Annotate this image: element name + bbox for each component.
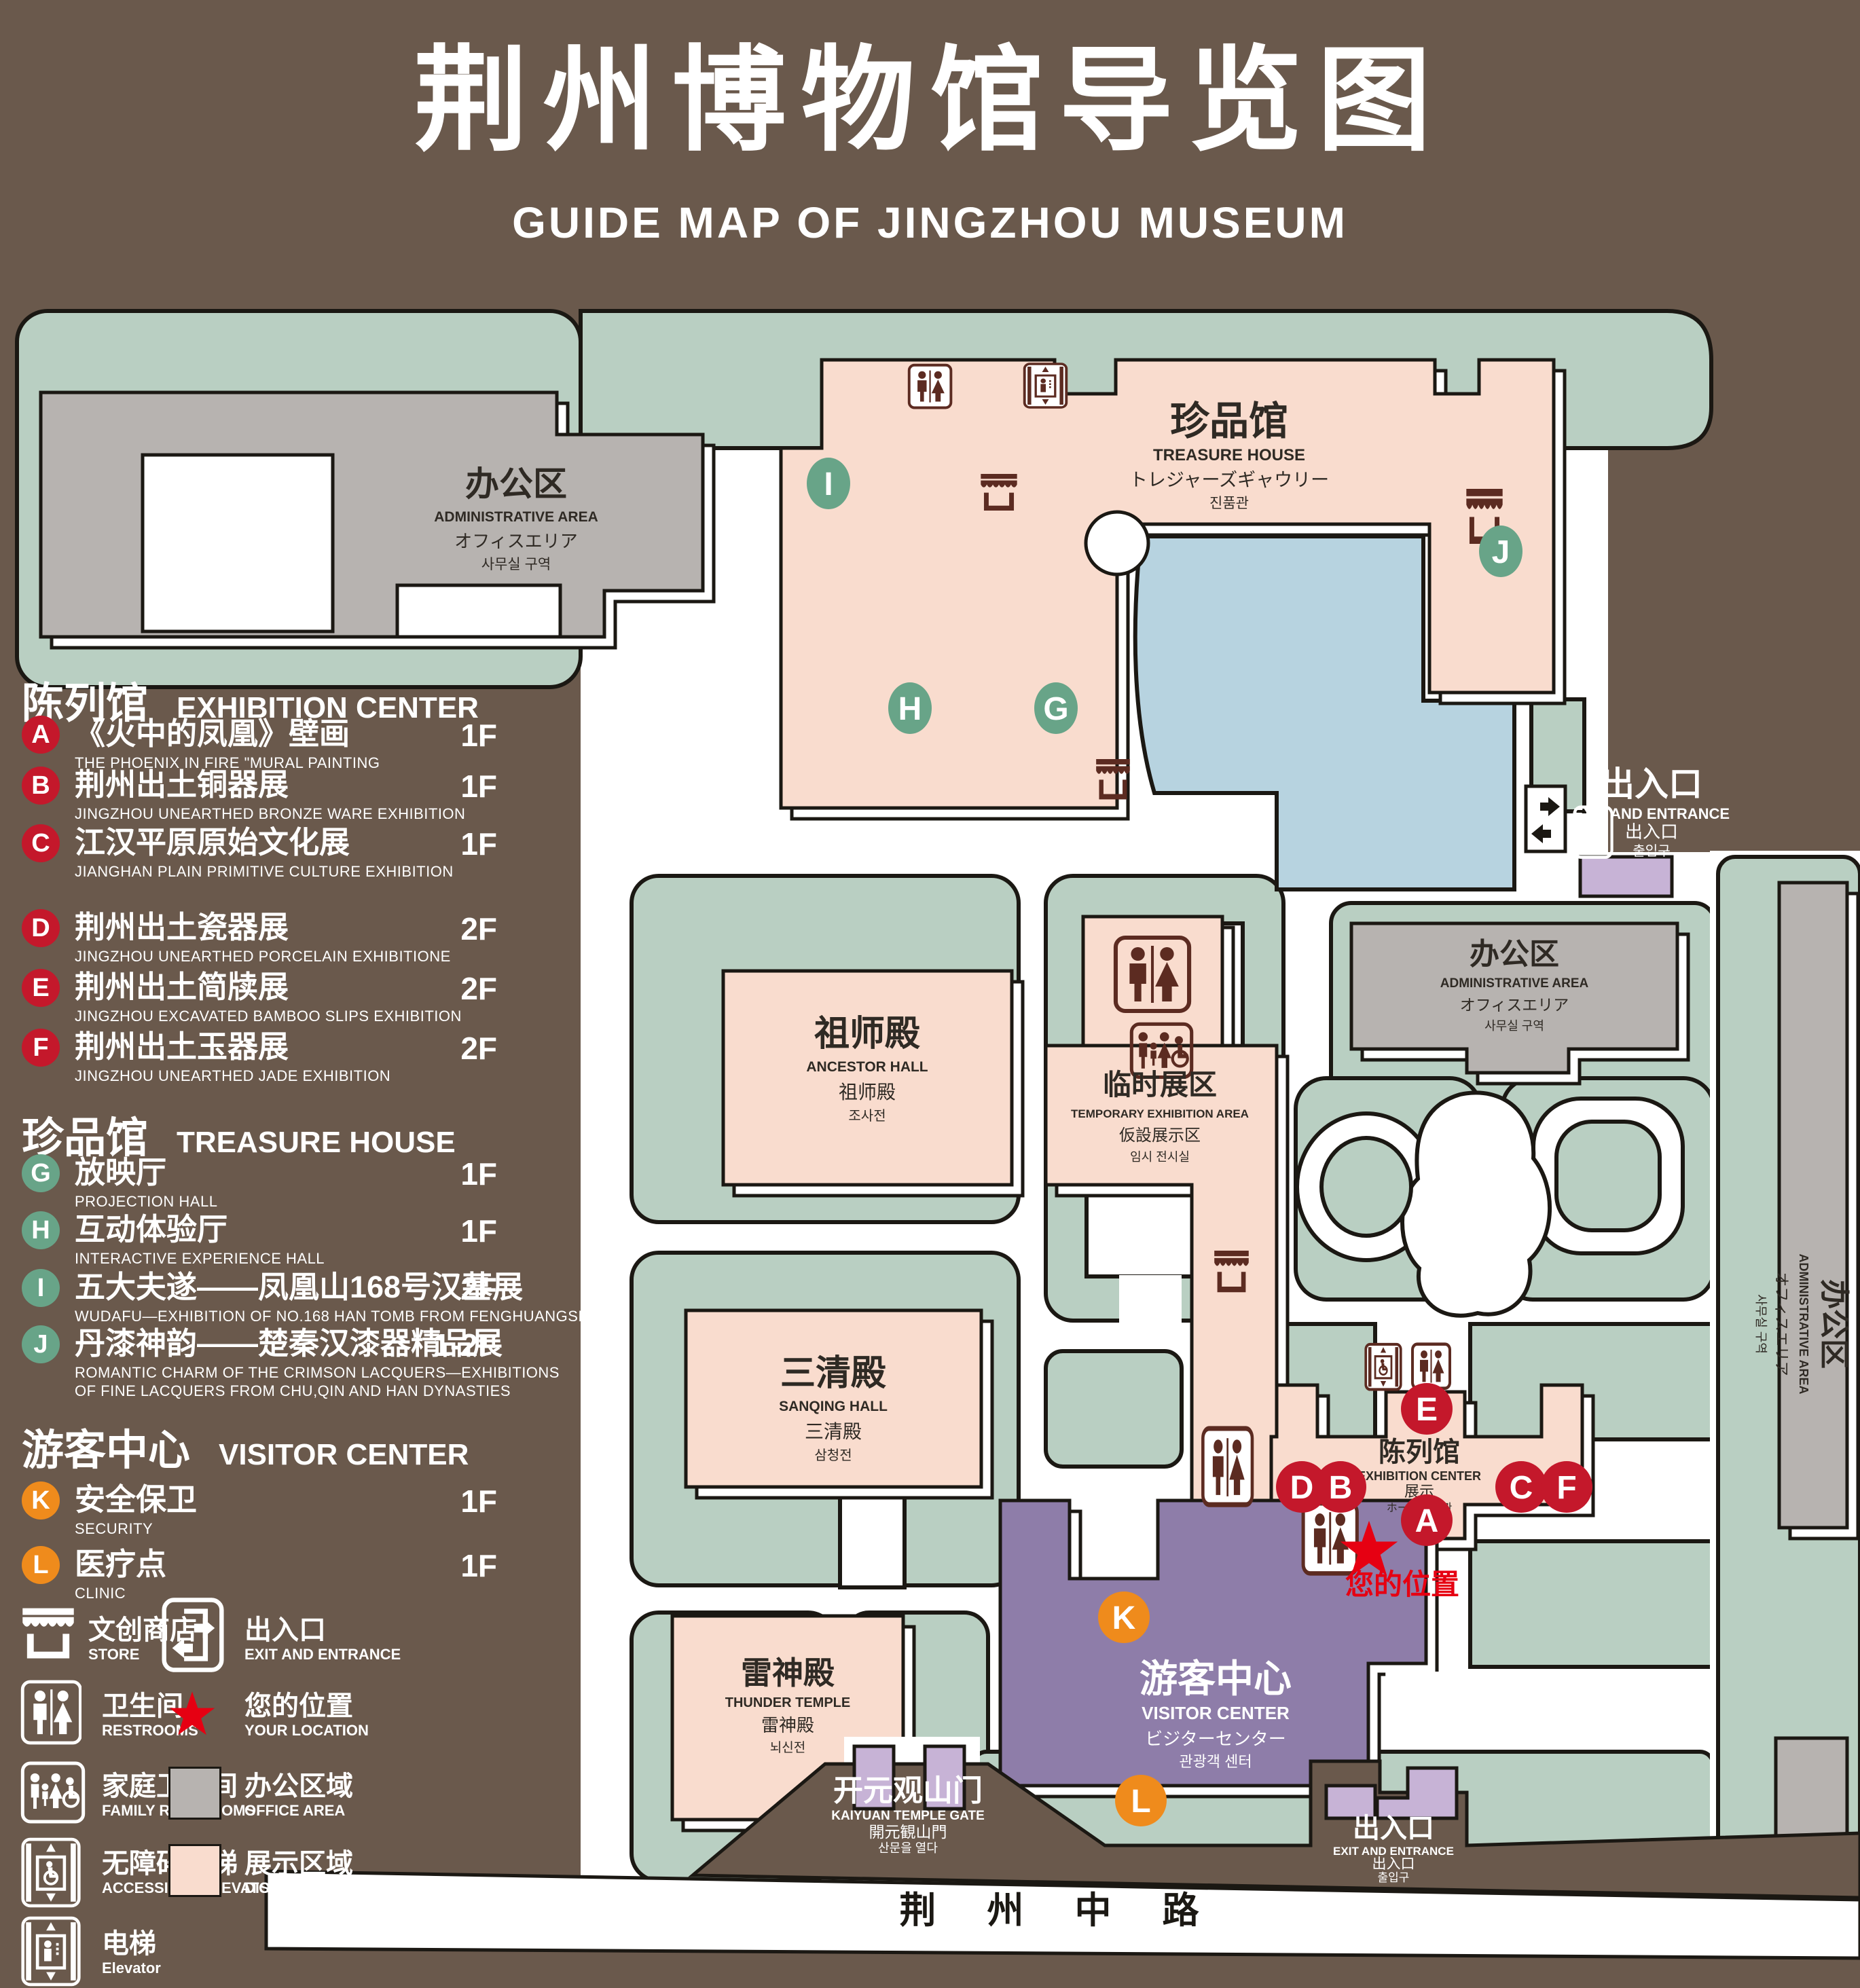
marker-badge: L <box>22 1546 60 1584</box>
svg-text:L: L <box>1131 1784 1150 1820</box>
svg-text:TREASURE HOUSE: TREASURE HOUSE <box>1153 446 1305 464</box>
svg-text:ADMINISTRATIVE AREA: ADMINISTRATIVE AREA <box>1797 1254 1810 1395</box>
exit-icon <box>162 1597 224 1673</box>
legend-item-g: G 放映厅 PROJECTION HALL 1F <box>22 1153 511 1211</box>
svg-text:办公区: 办公区 <box>1470 938 1559 971</box>
elevator-icon <box>20 1916 81 1987</box>
svg-text:임시 전시실: 임시 전시실 <box>1130 1150 1190 1164</box>
svg-text:EXHIBITION CENTER: EXHIBITION CENTER <box>1357 1469 1481 1483</box>
display-area-swatch <box>168 1844 221 1897</box>
marker-badge: J <box>22 1325 60 1363</box>
legend-item-k: K 安全保卫 SECURITY 1F <box>22 1480 511 1538</box>
svg-text:사무실 구역: 사무실 구역 <box>481 557 551 572</box>
svg-text:出入口: 出入口 <box>1601 765 1702 803</box>
restrooms-sign-icon <box>909 365 951 408</box>
section-title-en: VISITOR CENTER <box>219 1438 469 1471</box>
svg-text:EXIT AND ENTRANCE: EXIT AND ENTRANCE <box>1573 805 1730 822</box>
svg-text:관광객 센터: 관광객 센터 <box>1179 1753 1252 1770</box>
svg-text:TEMPORARY EXHIBITION AREA: TEMPORARY EXHIBITION AREA <box>1071 1107 1249 1120</box>
marker-e: E <box>1401 1383 1453 1435</box>
marker-i: I <box>807 458 850 509</box>
section-visitor-center: 游客中心VISITOR CENTER <box>22 1416 469 1477</box>
ne-exit-gap <box>1526 786 1565 851</box>
svg-text:珍品馆: 珍品馆 <box>1170 399 1288 443</box>
svg-text:G: G <box>1043 691 1068 727</box>
svg-text:临时展区: 临时展区 <box>1103 1069 1217 1101</box>
marker-badge: H <box>22 1211 60 1249</box>
svg-text:三清殿: 三清殿 <box>780 1354 886 1393</box>
legend-item-e: E 荆州出土简牍展 JINGZHOU EXCAVATED BAMBOO SLIP… <box>22 968 511 1025</box>
sanqing-block-notch <box>840 1487 905 1587</box>
marker-k: K <box>1098 1591 1150 1643</box>
svg-text:開元観山門: 開元観山門 <box>869 1823 947 1841</box>
svg-text:トレジャーズギャウリー: トレジャーズギャウリー <box>1129 470 1329 490</box>
symbol-display-area: 展示区域 DISPLAY AREA <box>244 1848 354 1897</box>
marker-badge: D <box>22 909 60 947</box>
svg-text:H: H <box>898 691 922 727</box>
legend-item-j: J 丹漆神韵——楚秦汉漆器精品展 ROMANTIC CHARM OF THE C… <box>22 1324 511 1400</box>
svg-text:조사전: 조사전 <box>848 1108 886 1124</box>
svg-text:A: A <box>1415 1503 1439 1539</box>
svg-text:I: I <box>824 466 833 502</box>
symbol-your-location: 您的位置 YOUR LOCATION <box>244 1691 369 1739</box>
svg-text:祖师殿: 祖师殿 <box>814 1014 920 1054</box>
marker-badge: C <box>22 824 60 862</box>
legend-item-a: A 《火中的凤凰》壁画 THE PHOENIX IN FIRE "MURAL P… <box>22 714 511 772</box>
svg-text:E: E <box>1416 1392 1438 1428</box>
svg-text:VISITOR CENTER: VISITOR CENTER <box>1142 1703 1290 1723</box>
svg-text:사무실 구역: 사무실 구역 <box>1754 1294 1768 1354</box>
building-ne-exit-hall <box>1580 857 1672 896</box>
svg-text:B: B <box>1329 1470 1353 1506</box>
marker-badge: I <box>22 1269 60 1307</box>
green-exh-se <box>1470 1541 1715 1667</box>
marker-b: B <box>1315 1461 1366 1513</box>
svg-text:游客中心: 游客中心 <box>1139 1657 1292 1700</box>
restrooms-sign-icon <box>1303 1503 1357 1573</box>
elevator-sign-icon <box>1025 364 1067 407</box>
legend-item-c: C 江汉平原原始文化展 JIANGHAN PLAIN PRIMITIVE CUL… <box>22 823 511 881</box>
store-icon <box>20 1608 76 1662</box>
svg-text:陈列馆: 陈列馆 <box>1379 1437 1460 1467</box>
symbol-elevator: 电梯 Elevator <box>102 1928 161 1977</box>
legend-item-d: D 荆州出土瓷器展 JINGZHOU UNEARTHED PORCELAIN E… <box>22 908 511 965</box>
your-location-label: 您的位置 <box>1345 1568 1459 1600</box>
svg-text:D: D <box>1290 1470 1314 1506</box>
floor-label: 1F <box>460 717 497 754</box>
legend-item-h: H 互动体验厅 INTERACTIVE EXPERIENCE HALL 1F <box>22 1210 511 1268</box>
floor-label: 1F <box>460 768 497 805</box>
svg-text:三清殿: 三清殿 <box>805 1421 862 1442</box>
svg-text:출입구: 출입구 <box>1633 843 1670 859</box>
restrooms-sign-icon <box>1412 1344 1450 1388</box>
floor-label: 2F <box>460 970 497 1007</box>
svg-text:KAIYUAN TEMPLE GATE: KAIYUAN TEMPLE GATE <box>831 1809 985 1823</box>
location-star-icon <box>168 1691 216 1737</box>
svg-text:K: K <box>1112 1600 1136 1636</box>
svg-text:出入口: 出入口 <box>1353 1814 1434 1843</box>
restroom-frame-gap <box>1119 1275 1182 1323</box>
floor-label: 2F <box>460 1030 497 1067</box>
floor-label: 1-2F <box>433 1327 497 1363</box>
office-area-swatch <box>168 1767 221 1820</box>
marker-c: C <box>1495 1461 1547 1513</box>
marker-a: A <box>1401 1494 1453 1546</box>
legend-item-f: F 荆州出土玉器展 JINGZHOU UNEARTHED JADE EXHIBI… <box>22 1027 511 1085</box>
svg-text:オフィスエリア: オフィスエリア <box>454 531 577 551</box>
marker-f: F <box>1541 1461 1592 1513</box>
svg-text:仮設展示区: 仮設展示区 <box>1119 1126 1201 1145</box>
svg-text:산문을 열다: 산문을 열다 <box>878 1841 938 1855</box>
svg-text:ANCESTOR HALL: ANCESTOR HALL <box>806 1059 928 1075</box>
restrooms-icon <box>20 1676 81 1749</box>
marker-l: L <box>1115 1775 1167 1826</box>
page-subtitle: GUIDE MAP OF JINGZHOU MUSEUM <box>0 198 1860 248</box>
floor-label: 2F <box>460 1270 497 1307</box>
svg-text:办公区: 办公区 <box>1817 1279 1850 1369</box>
road-label: 荆 州 中 路 <box>899 1890 1219 1931</box>
marker-h: H <box>888 682 932 734</box>
marker-badge: B <box>22 767 60 805</box>
floor-label: 2F <box>460 910 497 947</box>
marker-g: G <box>1034 682 1078 734</box>
floor-label: 1F <box>460 1483 497 1520</box>
svg-text:삼청전: 삼청전 <box>814 1448 852 1463</box>
svg-text:출입구: 출입구 <box>1378 1871 1410 1884</box>
section-title-zh: 游客中心 <box>22 1427 190 1474</box>
symbol-exit: 出入口 EXIT AND ENTRANCE <box>244 1615 401 1663</box>
floor-label: 1F <box>460 1156 497 1192</box>
guide-map-page: 荆 州 中 路 <box>0 0 1860 1988</box>
header: 荆州博物馆导览图 GUIDE MAP OF JINGZHOU MUSEUM <box>0 0 1860 248</box>
svg-text:出入口: 出入口 <box>1625 822 1678 842</box>
green-visitor-north <box>1046 1351 1182 1467</box>
svg-text:オフィスエリア: オフィスエリア <box>1773 1272 1790 1376</box>
svg-text:办公区: 办公区 <box>465 465 567 503</box>
svg-text:出入口: 出入口 <box>1372 1856 1415 1872</box>
svg-text:ADMINISTRATIVE AREA: ADMINISTRATIVE AREA <box>1440 976 1589 991</box>
svg-text:祖师殿: 祖师殿 <box>839 1082 896 1103</box>
svg-text:뇌신전: 뇌신전 <box>770 1740 805 1755</box>
accessible-elevator-sign-icon <box>1366 1344 1401 1390</box>
svg-text:사무실 구역: 사무실 구역 <box>1484 1019 1544 1033</box>
marker-badge: K <box>22 1481 60 1520</box>
legend-item-i: I 五大夫遂——凤凰山168号汉墓展 WUDAFU—EXHIBITION OF … <box>22 1268 511 1325</box>
marker-badge: G <box>22 1154 60 1192</box>
svg-text:F: F <box>1556 1470 1576 1506</box>
svg-text:진품관: 진품관 <box>1209 496 1249 511</box>
page-title: 荆州博物馆导览图 <box>0 8 1860 173</box>
svg-text:ビジターセンター: ビジターセンター <box>1145 1729 1285 1749</box>
accessible-elevator-icon <box>20 1837 81 1908</box>
svg-text:THUNDER TEMPLE: THUNDER TEMPLE <box>725 1695 850 1710</box>
svg-text:J: J <box>1492 534 1510 570</box>
restrooms-sign-icon <box>1203 1429 1252 1505</box>
svg-text:雷神殿: 雷神殿 <box>761 1715 814 1735</box>
svg-text:ADMINISTRATIVE AREA: ADMINISTRATIVE AREA <box>434 509 598 525</box>
legend-item-b: B 荆州出土铜器展 JINGZHOU UNEARTHED BRONZE WARE… <box>22 765 511 823</box>
svg-text:SANQING HALL: SANQING HALL <box>779 1399 888 1414</box>
floor-label: 1F <box>460 1547 497 1584</box>
marker-j: J <box>1479 526 1522 577</box>
family-restrooms-icon <box>20 1760 86 1825</box>
svg-text:开元观山门: 开元观山门 <box>833 1774 983 1807</box>
svg-text:オフィスエリア: オフィスエリア <box>1460 996 1569 1014</box>
floor-label: 1F <box>460 1213 497 1249</box>
svg-text:C: C <box>1510 1470 1533 1506</box>
legend-item-l: L 医疗点 CLINIC 1F <box>22 1545 511 1602</box>
symbol-office-area: 办公区域 OFFICE AREA <box>244 1771 353 1820</box>
floor-label: 1F <box>460 826 497 862</box>
marker-badge: E <box>22 969 60 1007</box>
marker-badge: F <box>22 1029 60 1067</box>
marker-badge: A <box>22 716 60 754</box>
svg-text:雷神殿: 雷神殿 <box>741 1655 835 1691</box>
